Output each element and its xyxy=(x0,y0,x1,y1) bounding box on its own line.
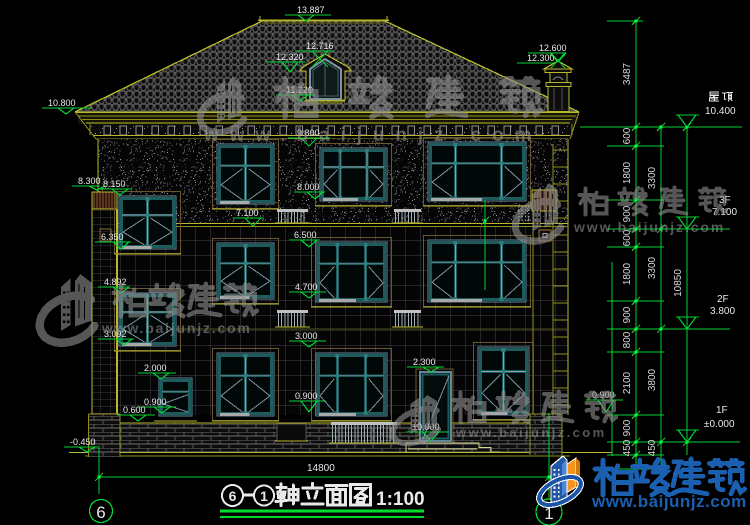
svg-text:0.600: 0.600 xyxy=(123,405,146,415)
svg-text:450: 450 xyxy=(622,439,633,456)
svg-text:800: 800 xyxy=(622,331,633,348)
svg-text:3300: 3300 xyxy=(647,166,658,189)
svg-text:6: 6 xyxy=(96,503,105,522)
svg-text:8.150: 8.150 xyxy=(103,179,126,189)
svg-text:±0.000: ±0.000 xyxy=(704,419,735,430)
svg-text:8.300: 8.300 xyxy=(78,176,101,186)
svg-text:3800: 3800 xyxy=(647,368,658,391)
svg-text:8.000: 8.000 xyxy=(297,182,320,192)
svg-text:10.800: 10.800 xyxy=(48,98,76,108)
svg-text:3487: 3487 xyxy=(622,62,633,85)
svg-text:1: 1 xyxy=(260,488,268,504)
svg-text:450: 450 xyxy=(647,439,658,456)
svg-text:3.000: 3.000 xyxy=(295,331,318,341)
svg-text:www.baijunjz.com: www.baijunjz.com xyxy=(101,320,252,336)
svg-text:1:100: 1:100 xyxy=(376,489,425,510)
svg-text:www.baijunjz.com: www.baijunjz.com xyxy=(573,219,725,235)
svg-text:900: 900 xyxy=(622,306,633,323)
svg-text:6: 6 xyxy=(229,488,237,504)
svg-text:2.300: 2.300 xyxy=(413,357,436,367)
svg-text:10850: 10850 xyxy=(673,269,684,297)
svg-text:900: 900 xyxy=(622,419,633,436)
svg-text:2.000: 2.000 xyxy=(144,363,167,373)
svg-text:14800: 14800 xyxy=(307,463,335,474)
svg-text:3.800: 3.800 xyxy=(710,306,735,317)
svg-text:1800: 1800 xyxy=(622,161,633,184)
svg-text:www.baijunjz.com: www.baijunjz.com xyxy=(455,425,607,440)
svg-text:12.300: 12.300 xyxy=(527,53,555,63)
svg-text:600: 600 xyxy=(622,127,633,144)
svg-text:www.baijunjz.com: www.baijunjz.com xyxy=(591,492,747,511)
svg-text:4.700: 4.700 xyxy=(295,282,318,292)
svg-text:1800: 1800 xyxy=(622,262,633,285)
svg-text:12.600: 12.600 xyxy=(539,43,567,53)
svg-text:-0.450: -0.450 xyxy=(70,437,96,447)
svg-text:3300: 3300 xyxy=(647,256,658,279)
svg-text:2F: 2F xyxy=(717,294,729,305)
svg-text:1F: 1F xyxy=(716,405,728,416)
svg-text:10.400: 10.400 xyxy=(705,106,736,117)
svg-text:12.716: 12.716 xyxy=(306,41,334,51)
svg-text:2100: 2100 xyxy=(622,371,633,394)
svg-text:6.500: 6.500 xyxy=(294,230,317,240)
svg-text:0.900: 0.900 xyxy=(144,397,167,407)
svg-text:0.900: 0.900 xyxy=(295,391,318,401)
svg-text:7.100: 7.100 xyxy=(236,208,259,218)
svg-text:12.320: 12.320 xyxy=(276,52,304,62)
svg-text:www.baijunjz.com: www.baijunjz.com xyxy=(203,125,542,146)
svg-text:13.887: 13.887 xyxy=(297,5,325,15)
